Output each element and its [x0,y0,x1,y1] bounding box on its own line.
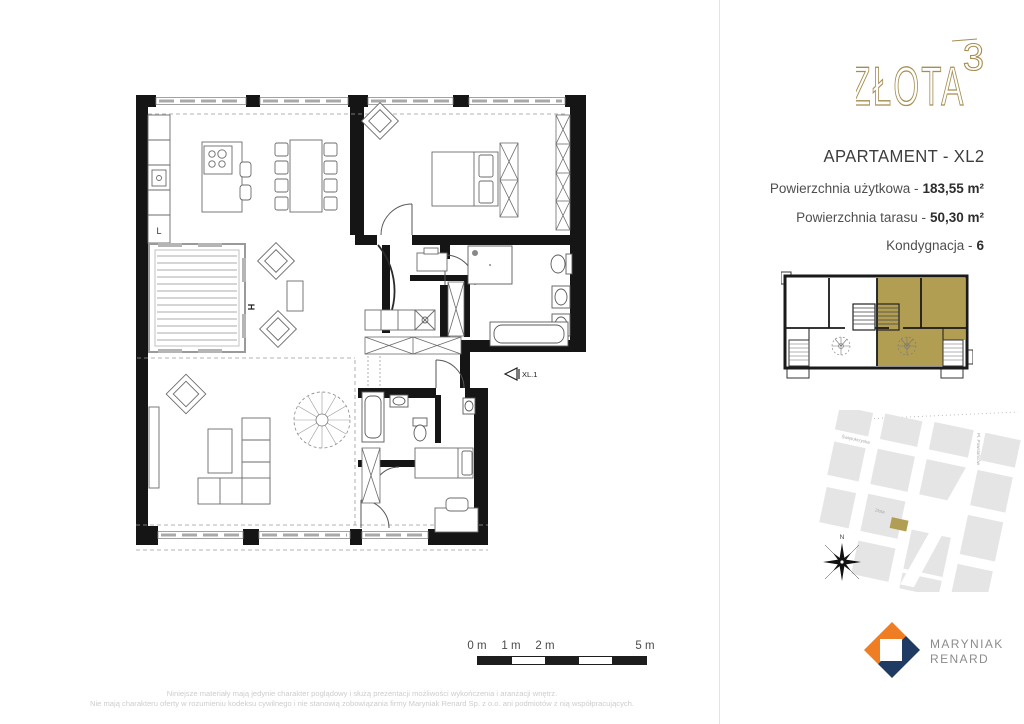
laundry [365,248,447,330]
developer-name-line2: RENARD [930,652,989,666]
zlota3-logo: ZŁOTA 3 [856,34,986,114]
spec-terrace-area: Powierzchnia tarasu -50,30 m² [796,210,984,225]
zlota-logo-sup: 3 [963,37,984,79]
spiral-staircase [294,392,350,448]
fridge-label: L [156,226,161,236]
scale-bar-segments [477,656,647,665]
spec-floor-value: 6 [976,238,984,253]
spec-floor-label: Kondygnacja - [886,238,972,253]
disclaimer: Niniejsze materiały mają jedynie charakt… [0,689,724,709]
scale-segment [511,657,546,664]
entrance-label: XL.1 [522,370,537,379]
scale-segment [478,657,511,664]
developer-logo: MARYNIAK RENARD [860,616,1012,682]
floor-plan: L [128,88,588,558]
master-bedroom [362,103,498,206]
main-bathroom [468,246,572,346]
apartment-title: APARTAMENT - XL2 [823,146,984,167]
scale-label-1: 1 m [501,640,520,652]
zlota-logo-text: ZŁOTA [856,55,965,114]
scale-label-2: 2 m [535,640,554,652]
spec-terrace-area-value: 50,30 m² [930,210,984,225]
spec-terrace-area-label: Powierzchnia tarasu - [796,210,926,225]
apartment-brochure-page: { "brand": { "logo_text": "ZŁOTA", "logo… [0,0,1024,724]
disclaimer-line2: Nie mają charakteru oferty w rozumieniu … [0,699,724,709]
spec-usable-area-value: 183,55 m² [922,181,984,196]
spec-usable-area-label: Powierzchnia użytkowa - [770,181,919,196]
winter-garden: H [149,243,256,353]
scale-segment [613,657,646,664]
garden-label: H [246,304,256,311]
disclaimer-line1: Niniejsze materiały mają jedynie charakt… [0,689,724,699]
entrance-marker: XL.1 [505,368,537,380]
developer-logo-mark [864,622,920,678]
panel-divider [719,0,720,724]
second-bathroom [362,392,475,442]
scale-label-0: 0 m [467,640,486,652]
scale-segment [546,657,579,664]
compass-north-label: N [840,534,845,541]
street-label-powstancow: Pl. Powstańców [976,433,981,466]
scale-label-5: 5 m [635,640,654,652]
site-map: Złota Świętokrzyska Pl. Powstańców N [812,410,1022,592]
spec-usable-area: Powierzchnia użytkowa -183,55 m² [770,181,984,196]
scale-segment [578,657,613,664]
scale-bar: 0 m 1 m 2 m 5 m [469,640,659,670]
kitchen: L [148,115,251,243]
spec-floor: Kondygnacja -6 [886,238,984,253]
developer-name-line1: MARYNIAK [930,637,1004,651]
dining-set [275,140,337,212]
building-key-plan [781,270,973,382]
second-bedroom [415,448,478,532]
